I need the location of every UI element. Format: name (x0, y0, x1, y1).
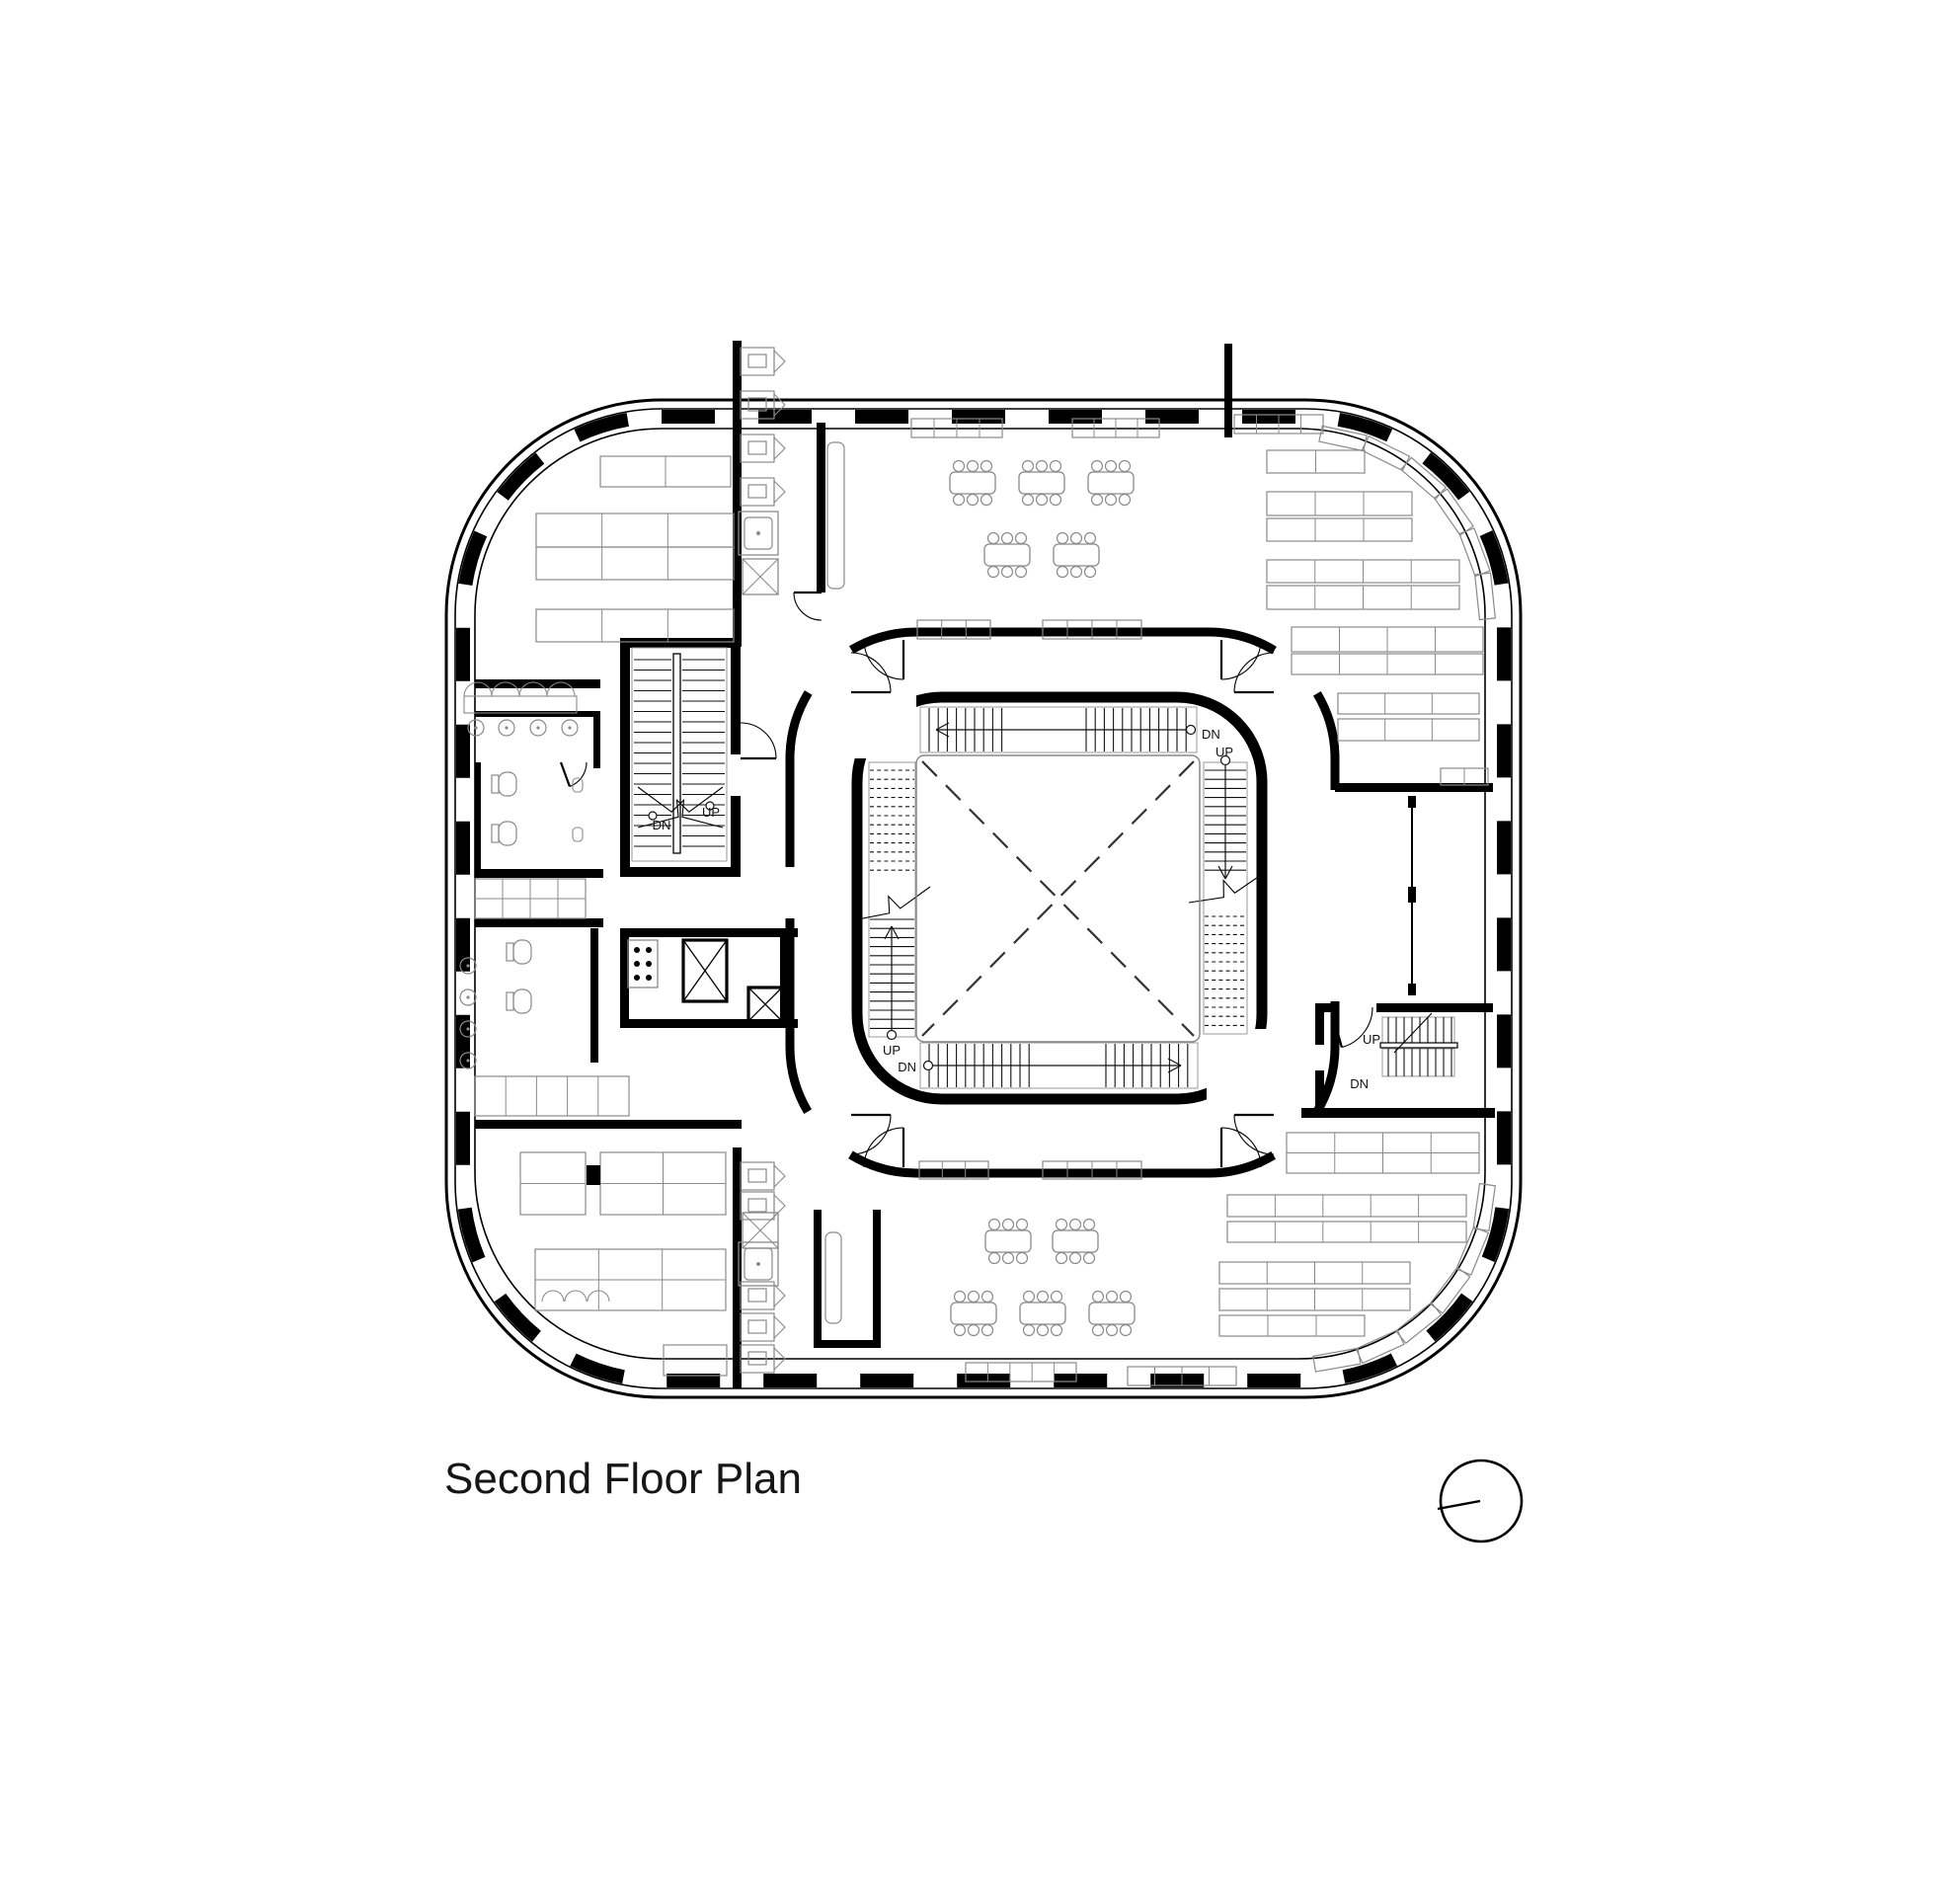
urinal (573, 778, 583, 792)
stair-label: DN (1202, 727, 1220, 742)
shelf-or-desk-row (1338, 693, 1479, 714)
shelf-or-desk-row (1287, 1133, 1479, 1173)
stall-scallop (565, 1291, 587, 1302)
atrium-stair-band (853, 762, 930, 1040)
door-swing (1234, 653, 1274, 692)
toilet (507, 940, 531, 964)
plan-title: Second Floor Plan (444, 1455, 802, 1503)
shelf-or-desk-row (600, 1152, 726, 1215)
shelf-or-desk-row (536, 513, 734, 547)
building-shell (446, 400, 1521, 1397)
door-swing (741, 723, 776, 758)
meeting-table (1054, 533, 1099, 578)
meeting-table (1089, 1292, 1135, 1336)
stair-label: UP (1363, 1032, 1380, 1047)
stair-label: UP (883, 1043, 901, 1058)
stair-label: DN (653, 818, 671, 832)
door-swing (1221, 640, 1261, 679)
atrium-stair-band (920, 707, 1197, 752)
counter-appliance (743, 559, 778, 594)
door-swing (864, 640, 903, 679)
window-desk (1362, 436, 1409, 471)
shelf-or-desk-row (664, 1345, 727, 1376)
furniture (460, 348, 1495, 1385)
stall-scallop (542, 1291, 564, 1302)
window-desk (1456, 1226, 1488, 1275)
bench (827, 442, 844, 589)
toilet (507, 989, 531, 1013)
stair-label: DN (1350, 1076, 1369, 1091)
north-arrow-circle (1441, 1461, 1522, 1541)
shelf-or-desk-row (1292, 654, 1483, 674)
meeting-table (984, 533, 1030, 578)
meeting-table (1019, 461, 1064, 506)
workstation (741, 434, 785, 462)
door-swing (794, 592, 822, 620)
core-stair (632, 648, 727, 861)
door-swing (851, 1115, 891, 1154)
shelf-or-desk-row (1267, 518, 1412, 541)
shelf-or-desk-row (475, 879, 586, 918)
meeting-table (985, 1220, 1031, 1264)
workstation (741, 348, 785, 375)
meeting-table (1088, 461, 1134, 506)
workstation (741, 1313, 785, 1341)
sink (460, 989, 476, 1005)
sink-unit (739, 512, 778, 555)
shelf-or-desk-row (1227, 1195, 1466, 1217)
shelf-or-desk-row (600, 456, 731, 487)
meeting-table (1053, 1220, 1098, 1264)
shelf-or-desk-row (1227, 1222, 1466, 1242)
shelf-or-desk-row (1267, 450, 1365, 473)
sink (562, 720, 578, 736)
shelf-or-desk-row (1267, 560, 1459, 583)
glazed-partition (1408, 796, 1416, 995)
wall-counter (1128, 1367, 1236, 1385)
stove (628, 940, 658, 987)
shelf-or-desk-row (1267, 492, 1412, 515)
stair-label: UP (1215, 745, 1233, 759)
stair-label: UP (702, 805, 720, 820)
workstation (741, 478, 785, 506)
interior-walls (475, 341, 1495, 1388)
floor-plan-svg: Second Floor Plan DNUPDNUPUPDNUPDN (0, 0, 1960, 1896)
elevator (748, 987, 782, 1021)
urinal (573, 828, 583, 841)
toilet (492, 772, 516, 796)
shelf-or-desk-row (1219, 1289, 1410, 1310)
shelf-or-desk-row (1338, 719, 1479, 741)
meeting-table (951, 1292, 996, 1336)
drawing-sheet: Second Floor Plan DNUPDNUPUPDNUPDN (0, 0, 1960, 1896)
elevator (683, 940, 727, 1001)
shelf-or-desk-row (475, 1076, 629, 1116)
sink (530, 720, 546, 736)
shelf-or-desk-row (1267, 586, 1459, 609)
meeting-table (950, 461, 995, 506)
sink (468, 720, 484, 736)
bridge-stair (1380, 1013, 1457, 1076)
bench (825, 1232, 841, 1323)
shelf-or-desk-row (536, 609, 734, 642)
shelf-or-desk-row (520, 1152, 586, 1215)
door-swing (1234, 1115, 1274, 1154)
meeting-table (1020, 1292, 1065, 1336)
shelf-or-desk-row (1219, 1262, 1410, 1284)
shelf-or-desk-row (1292, 627, 1483, 652)
shelf-or-desk-row (536, 547, 734, 580)
wall-counter (1441, 768, 1488, 785)
atrium-void (916, 755, 1200, 1042)
north-arrow (1438, 1461, 1522, 1541)
sink (499, 720, 514, 736)
shelf-or-desk-row (1219, 1315, 1365, 1336)
workstation (741, 1162, 785, 1190)
toilet (492, 822, 516, 845)
stair-label: DN (898, 1060, 916, 1074)
atrium-stair-band (920, 1043, 1198, 1088)
